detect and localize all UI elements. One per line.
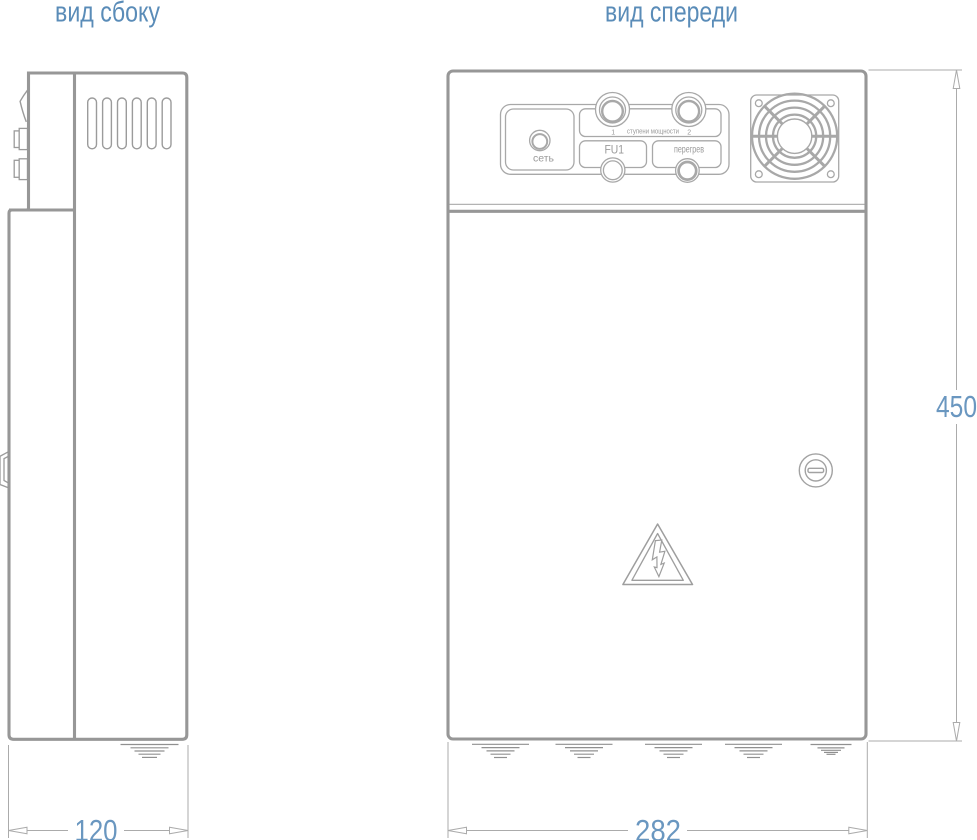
svg-text:сеть: сеть [533, 154, 554, 165]
svg-text:450: 450 [936, 390, 977, 424]
svg-text:вид спереди: вид спереди [605, 0, 738, 29]
svg-text:120: 120 [75, 814, 118, 840]
svg-text:ступени мощности: ступени мощности [627, 129, 679, 136]
svg-text:перегрев: перегрев [674, 145, 704, 156]
svg-text:282: 282 [635, 814, 681, 840]
svg-text:2: 2 [687, 129, 691, 136]
svg-text:1: 1 [611, 129, 615, 136]
svg-text:вид сбоку: вид сбоку [55, 0, 161, 29]
svg-text:FU1: FU1 [605, 142, 625, 156]
